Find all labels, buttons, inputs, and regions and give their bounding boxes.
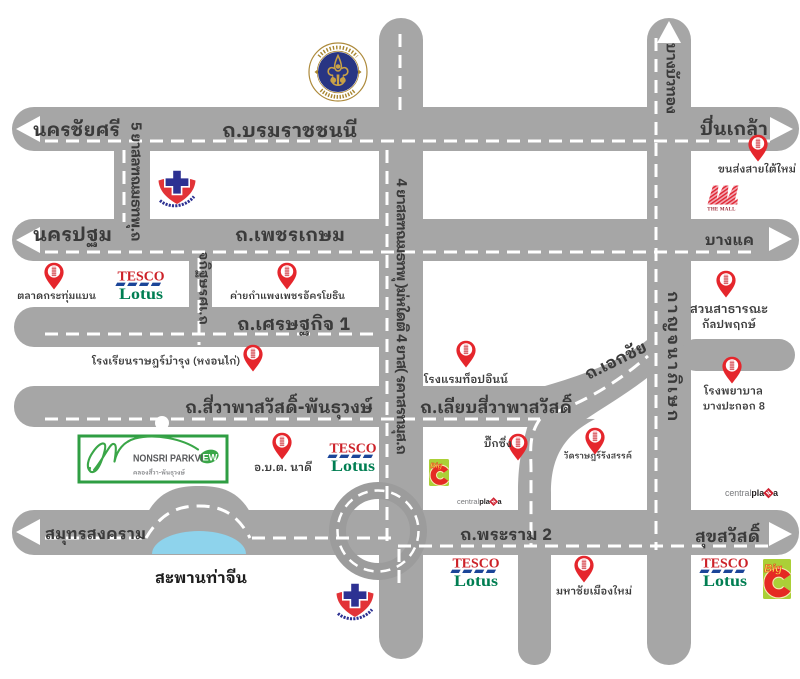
svg-text:Lotus: Lotus [119,286,163,303]
svg-text:TESCO: TESCO [118,270,165,285]
svg-text:Lotus: Lotus [331,458,375,475]
svg-text:TESCO: TESCO [702,557,749,572]
svg-text:THE MALL: THE MALL [707,208,736,213]
svg-text:Big: Big [430,461,443,470]
svg-text:Big: Big [764,563,782,575]
svg-text:TESCO: TESCO [453,557,500,572]
svg-text:TESCO: TESCO [330,442,377,457]
svg-text:NONSRI PARKVI: NONSRI PARKVI [133,454,203,465]
svg-text:Lotus: Lotus [454,573,498,590]
svg-text:Lotus: Lotus [703,573,747,590]
svg-text:EW: EW [203,453,218,463]
svg-text:a: a [773,488,778,498]
svg-text:centralpla: centralpla [725,488,764,498]
svg-text:centralpla: centralpla [457,497,491,506]
